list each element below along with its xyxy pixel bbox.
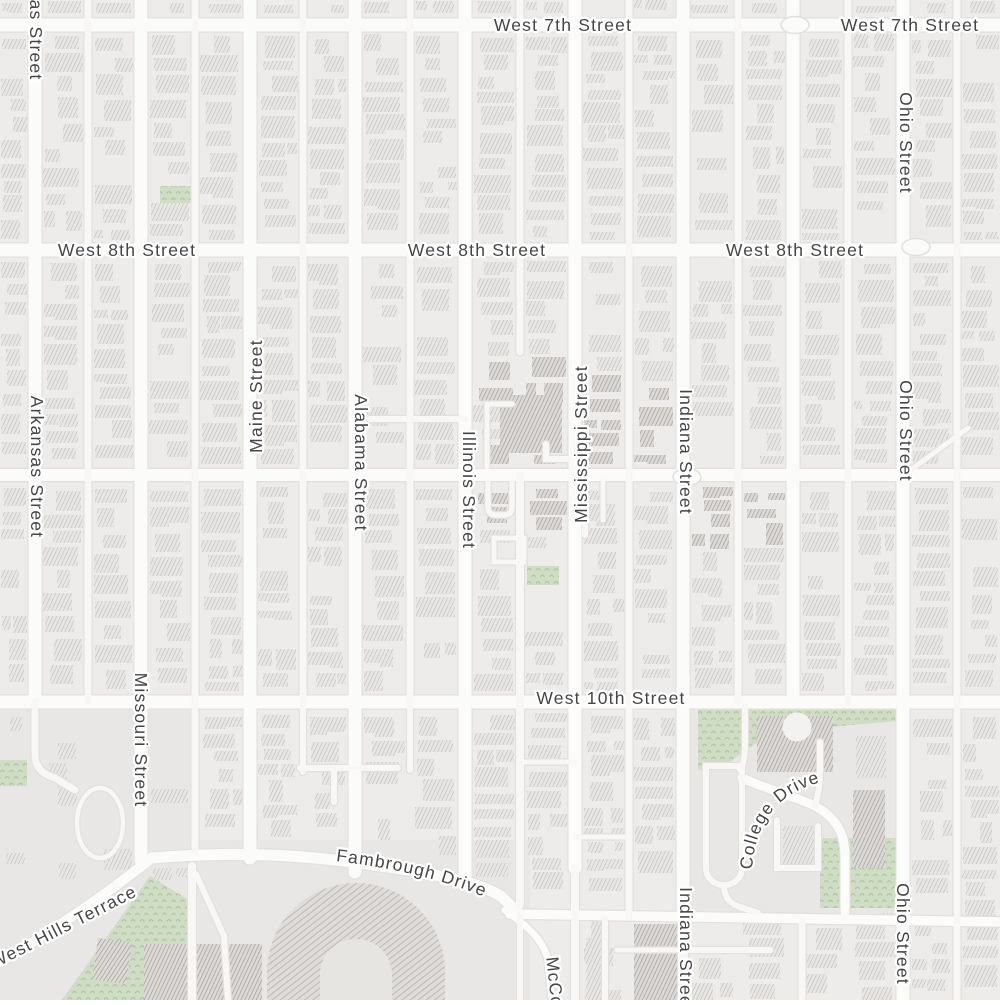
svg-text:Ohio Street: Ohio Street	[896, 92, 916, 194]
svg-text:Indiana Street: Indiana Street	[676, 887, 696, 1000]
svg-text:West 7th Street: West 7th Street	[841, 15, 979, 35]
svg-text:West 8th Street: West 8th Street	[408, 240, 546, 260]
svg-text:West 8th Street: West 8th Street	[58, 240, 196, 260]
svg-text:Mississippi Street: Mississippi Street	[571, 365, 591, 523]
svg-text:as Street: as Street	[26, 0, 46, 80]
svg-text:Ohio Street: Ohio Street	[893, 883, 913, 985]
svg-text:West 10th Street: West 10th Street	[536, 688, 685, 708]
svg-text:West 7th Street: West 7th Street	[494, 15, 632, 35]
svg-text:West 8th Street: West 8th Street	[726, 240, 864, 260]
svg-text:Indiana Street: Indiana Street	[676, 389, 696, 515]
svg-text:Missouri Street: Missouri Street	[131, 673, 151, 808]
svg-text:Ohio Street: Ohio Street	[896, 380, 916, 482]
svg-text:Alabama Street: Alabama Street	[351, 394, 371, 531]
svg-text:Maine Street: Maine Street	[246, 339, 266, 453]
svg-text:Illinois Street: Illinois Street	[459, 431, 479, 549]
svg-text:Arkansas Street: Arkansas Street	[27, 396, 47, 539]
